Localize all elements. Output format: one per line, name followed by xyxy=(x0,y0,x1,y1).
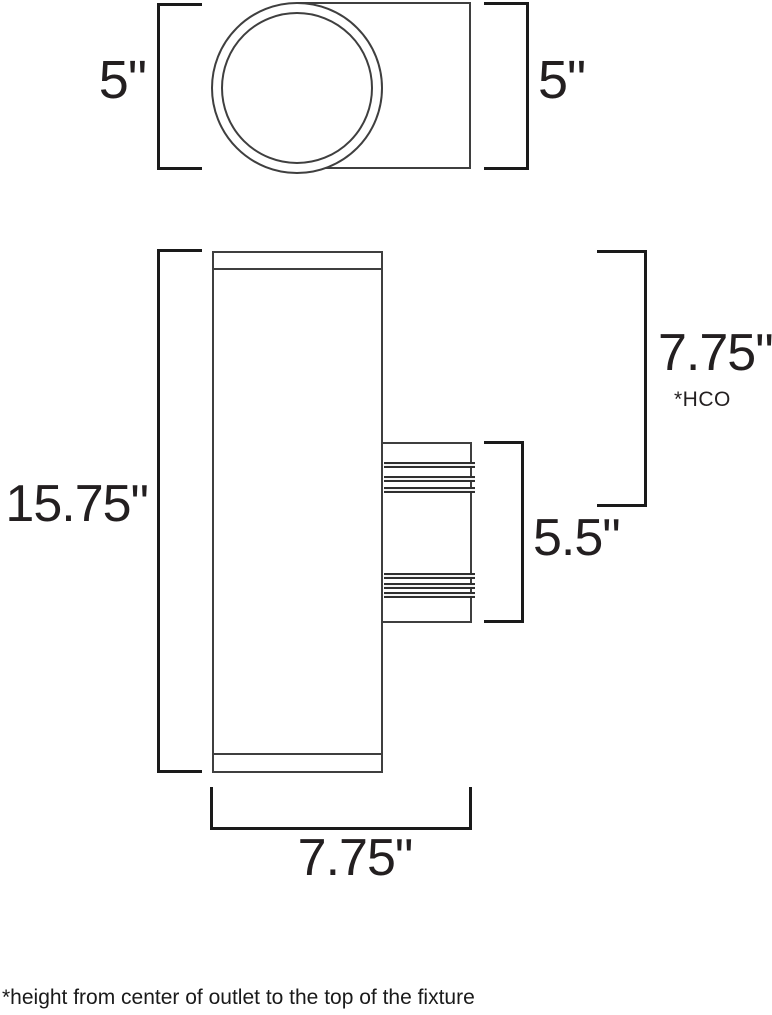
mount-height-dimension-bracket xyxy=(484,441,524,623)
top-view-cylinder-inner-ring xyxy=(221,12,373,164)
mount-height-dimension-label: 5.5" xyxy=(533,512,620,564)
front-view-bottom-cap-line xyxy=(214,753,381,755)
mount-rib-ring xyxy=(384,592,475,598)
front-view-cylinder-body xyxy=(212,251,383,773)
top-view-diameter-label-right: 5" xyxy=(538,53,585,107)
spec-sheet-drawing: 5" 5" 15.75" 7.75" *HCO 5.5" xyxy=(0,0,772,1015)
mount-rib-ring xyxy=(384,583,475,589)
height-dimension-label: 15.75" xyxy=(0,478,148,530)
hco-dimension-bracket xyxy=(597,250,647,507)
mount-rib-ring xyxy=(384,573,475,579)
top-view-left-dimension-bracket xyxy=(157,3,202,170)
footnote-text: *height from center of outlet to the top… xyxy=(2,985,475,1010)
mount-rib-ring xyxy=(384,476,475,482)
top-view-diameter-label-left: 5" xyxy=(88,53,146,107)
hco-dimension-label: 7.75" xyxy=(658,327,772,379)
width-dimension-label: 7.75" xyxy=(210,832,500,884)
width-dimension-bracket xyxy=(210,787,472,830)
mount-rib-ring xyxy=(384,462,475,468)
hco-note-label: *HCO xyxy=(674,389,731,410)
mount-rib-ring xyxy=(384,487,475,493)
front-view-top-cap-line xyxy=(214,268,381,270)
height-dimension-bracket xyxy=(157,249,202,773)
top-view-right-dimension-bracket xyxy=(484,2,529,170)
